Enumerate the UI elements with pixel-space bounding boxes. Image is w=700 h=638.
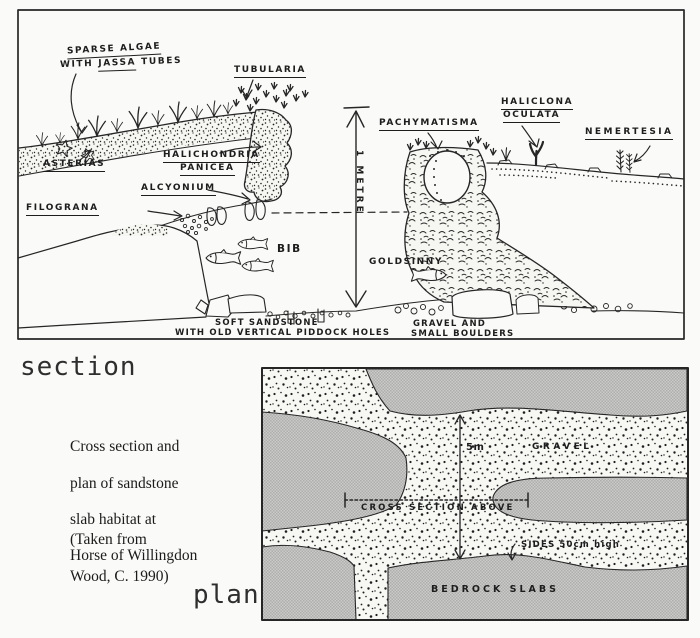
label-cross-section-above: CROSS SECTION ABOVE xyxy=(361,504,515,513)
label-bedrock-slabs: BEDROCK SLABS xyxy=(431,585,559,595)
label-goldsinny: GOLDSINNY xyxy=(369,258,443,267)
label-oculata: OCULATA xyxy=(503,111,560,123)
alcyonium-lobes-icon xyxy=(207,200,265,226)
scanned-page: SPARSE ALGAE WITHJASSATUBES TUBULARIA AS… xyxy=(0,0,700,638)
tubularia-colony-icon xyxy=(234,83,309,112)
label-asterias: ASTERIAS xyxy=(43,160,105,172)
label-haliclona: HALICLONA xyxy=(501,98,573,110)
nemertesia-hydroid-icon xyxy=(617,150,633,172)
bib-fish-icon xyxy=(206,237,273,272)
label-alcyonium: ALCYONIUM xyxy=(141,184,216,196)
label-tubularia: TUBULARIA xyxy=(234,66,306,78)
label-soft-sandstone-line2: WITH OLD VERTICAL PIDDOCK HOLES xyxy=(175,329,390,338)
right-seabed xyxy=(487,142,684,186)
label-halichondria: HALICHONDRIA xyxy=(163,151,260,163)
label-5m: 5m xyxy=(466,443,484,453)
label-filograna: FILOGRANA xyxy=(26,204,99,216)
label-scale-1-metre: 1 METRE xyxy=(354,150,364,215)
plan-heading: plan xyxy=(193,580,260,610)
caption-source: (Taken from Wood, C. 1990) xyxy=(70,513,169,604)
haliclona-sponge-icon xyxy=(530,142,543,165)
label-pachymatisma: PACHYMATISMA xyxy=(379,119,479,131)
section-heading: section xyxy=(20,352,137,382)
label-gravel-and: GRAVEL AND xyxy=(413,320,486,329)
caption-source-line: Wood, C. 1990) xyxy=(70,568,169,586)
bedrock-bottom-left xyxy=(262,545,356,620)
pachymatisma-sponge-icon xyxy=(424,151,470,203)
label-small-boulders: SMALL BOULDERS xyxy=(411,330,514,339)
boulders xyxy=(196,295,266,317)
label-sides-50cm: SIDES 50cm high xyxy=(521,541,620,550)
caption-line: Cross section and xyxy=(70,438,197,456)
label-bib: BIB xyxy=(277,244,302,255)
caption-line: plan of sandstone xyxy=(70,475,197,493)
label-panicea: PANICEA xyxy=(180,164,235,176)
lower-rock xyxy=(18,199,684,328)
plan-drawing xyxy=(262,368,688,620)
label-nemertesia: NEMERTESIA xyxy=(585,128,673,140)
caption-source-line: (Taken from xyxy=(70,531,169,549)
level-dashed-line xyxy=(272,212,407,213)
label-plan-gravel: GRAVEL xyxy=(532,443,593,452)
label-soft-sandstone-line1: SOFT SANDSTONE xyxy=(215,319,319,328)
